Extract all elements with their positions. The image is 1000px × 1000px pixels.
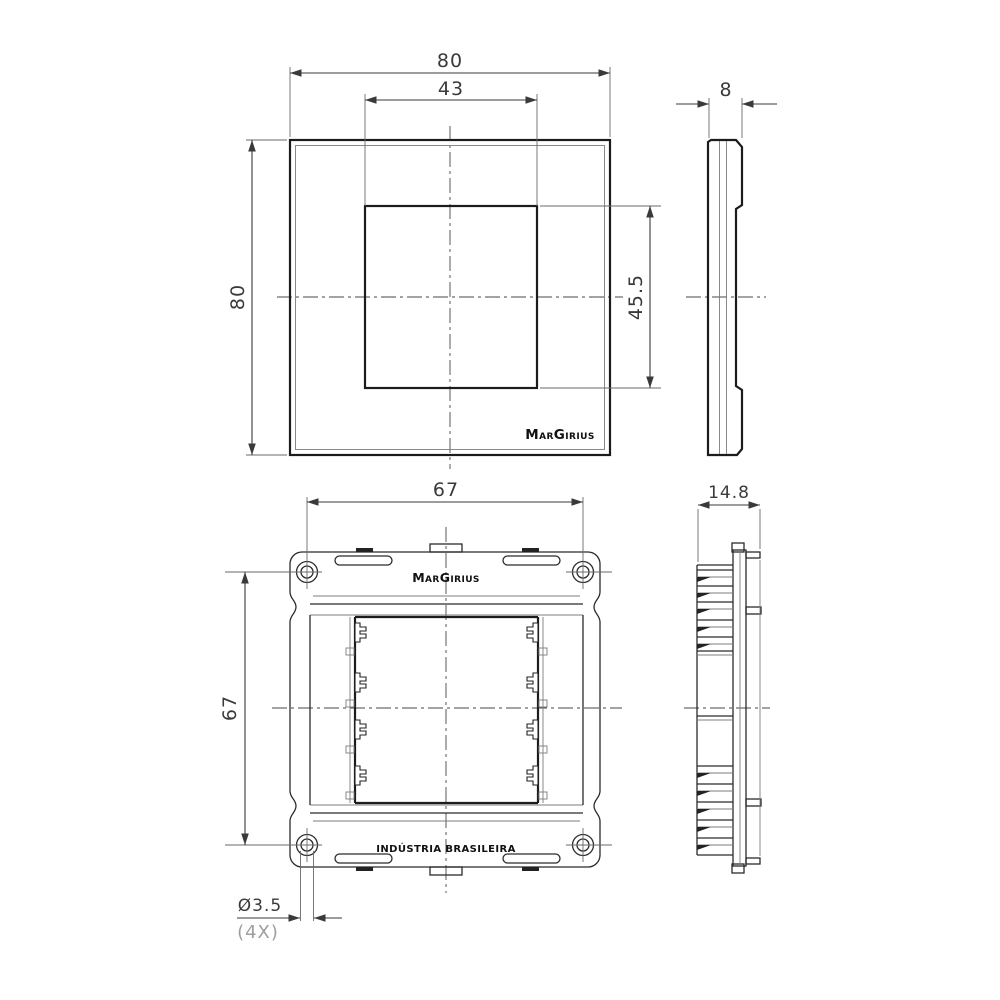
frame-side-view: 14.8 (684, 483, 770, 873)
plate-extension-lines (246, 67, 661, 455)
plate-height-dim: 80 (227, 284, 249, 310)
frame-origin-label: INDÚSTRIA BRASILEIRA (376, 842, 516, 855)
plate-opening-width-dim: 43 (438, 78, 464, 100)
frame-bottom-snap-right (522, 867, 539, 871)
clip (355, 766, 366, 785)
technical-drawing-page: 80 43 80 45.5 MarGirius 8 (0, 0, 1000, 1000)
dimension-drawing: 80 43 80 45.5 MarGirius 8 (0, 0, 1000, 1000)
frame-inner-lines (310, 596, 583, 821)
frame-extension-lines (225, 497, 583, 921)
hole-diameter-label: Ø3.5 (238, 896, 282, 916)
plate-side-extension-lines (709, 98, 742, 138)
clip (527, 673, 538, 692)
clip (527, 720, 538, 739)
plate-brand-logo: MarGirius (525, 427, 594, 443)
plate-opening-height-dim: 45.5 (625, 274, 647, 320)
plate-side-profile (708, 140, 742, 455)
plate-centerlines (277, 126, 623, 469)
slot (335, 556, 392, 565)
clip (355, 623, 366, 642)
frame-side-fins (697, 565, 733, 855)
frame-brand-logo: MarGirius (412, 570, 480, 585)
plate-width-dim: 80 (437, 50, 463, 72)
slot (503, 556, 560, 565)
plate-side-inner-lines (720, 141, 727, 454)
plate-front-view: 80 43 80 45.5 MarGirius (227, 50, 661, 469)
frame-top-snap-left (356, 548, 373, 552)
frame-outline (290, 552, 600, 867)
frame-side-extension-lines (698, 509, 760, 562)
clip (527, 623, 538, 642)
plate-thickness-dim: 8 (719, 79, 732, 101)
slot (503, 854, 560, 863)
clip (355, 720, 366, 739)
clip (355, 673, 366, 692)
frame-slots (335, 556, 560, 863)
clip (527, 766, 538, 785)
frame-width-dim: 67 (433, 479, 459, 501)
frame-screw-holes (297, 562, 613, 863)
plate-side-view: 8 (676, 79, 777, 455)
frame-edge-tabs (356, 544, 539, 875)
plate-dimension-lines (252, 73, 650, 455)
frame-height-dim: 67 (219, 695, 241, 721)
frame-bottom-snap-left (356, 867, 373, 871)
slot (335, 854, 392, 863)
hole-count-label: (4X) (237, 922, 279, 943)
frame-front-view: 67 67 Ø3.5 (4X) MarGirius INDÚSTRIA BRAS… (219, 479, 622, 943)
frame-depth-dim: 14.8 (708, 483, 750, 503)
frame-top-snap-right (522, 548, 539, 552)
frame-module-clips (346, 623, 547, 799)
